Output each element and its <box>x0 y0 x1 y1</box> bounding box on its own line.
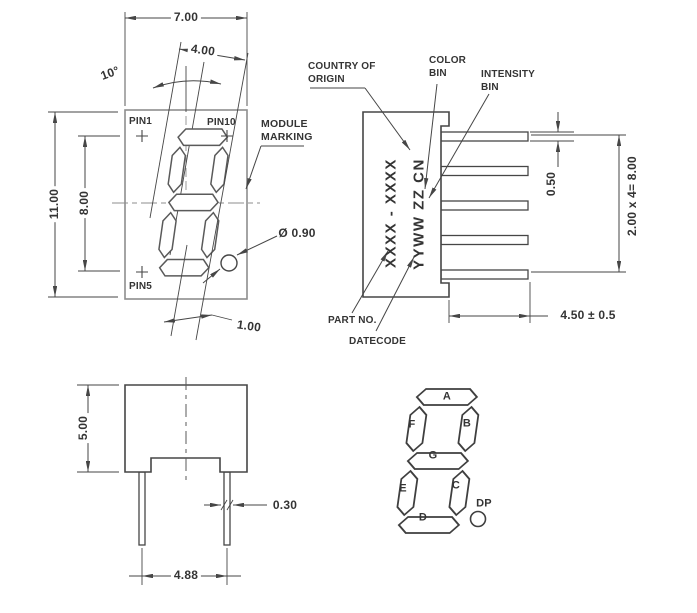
part-number-marking-text: XXXX - XXXX <box>384 158 399 268</box>
front-dp-circle <box>221 255 237 271</box>
dim-11mm-label: 11.00 <box>48 186 60 222</box>
front-view <box>48 12 304 340</box>
dim-8mm-label: 8.00 <box>78 188 90 218</box>
datecode-marking-text: YYWW ZZ CN <box>412 158 427 270</box>
segment-f-label: F <box>409 420 416 431</box>
segment-g-label: G <box>429 451 438 462</box>
segment-c-shape <box>448 471 470 515</box>
segment-d-label: D <box>419 513 427 524</box>
bottom-view <box>77 377 267 585</box>
side-view-body <box>363 112 449 297</box>
country-of-origin-label-line2: ORIGIN <box>308 75 345 85</box>
segment-e-label: E <box>399 484 407 495</box>
drawing-linework <box>0 0 697 613</box>
dim-4mm-label: 4.00 <box>187 42 219 58</box>
dim-pin-width-label: 0.30 <box>273 499 297 511</box>
side-view <box>310 84 626 331</box>
part-no-label: PART NO. <box>328 316 377 326</box>
led-display-technical-drawing: 7.00 4.00 10° PIN1 PIN10 PIN5 MODULE MAR… <box>0 0 697 613</box>
dim-1mm-label: 1.00 <box>236 318 262 333</box>
segment-a-label: A <box>443 392 451 403</box>
dim-7mm-label: 7.00 <box>171 11 201 23</box>
dim-pin-thickness-label: 0.50 <box>545 172 557 196</box>
segment-dp-circle <box>471 512 486 527</box>
dim-dp-diameter-label: Ø 0.90 <box>278 227 315 239</box>
front-digit <box>155 129 232 276</box>
segment-dp-label: DP <box>476 499 492 510</box>
module-marking-label-line1: MODULE <box>261 119 308 130</box>
pin1-label: PIN1 <box>129 117 152 127</box>
segment-d-shape <box>398 517 460 533</box>
color-bin-label-line2: BIN <box>429 69 447 79</box>
pin10-label: PIN10 <box>207 118 236 128</box>
dim-5mm-label: 5.00 <box>77 413 89 443</box>
segment-g-shape <box>407 453 469 469</box>
color-bin-label-line1: COLOR <box>429 56 466 66</box>
dim-line-1mm <box>164 315 212 322</box>
datecode-label: DATECODE <box>349 337 406 347</box>
intensity-bin-label-line2: BIN <box>481 83 499 93</box>
module-marking-label-line2: MARKING <box>261 132 313 143</box>
angle-arc-10deg <box>153 81 221 88</box>
intensity-bin-label-line1: INTENSITY <box>481 70 535 80</box>
dim-pin-pitch-label: 2.00 x 4= 8.00 <box>626 156 638 236</box>
module-marking-leader <box>246 146 261 189</box>
dim-pin-length-label: 4.50 ± 0.5 <box>560 309 615 321</box>
segment-b-label: B <box>463 419 471 430</box>
dim-pin-spacing-label: 4.88 <box>171 569 201 581</box>
segment-diagram <box>394 389 486 533</box>
country-of-origin-label-line1: COUNTRY OF <box>308 62 376 72</box>
pin5-label: PIN5 <box>129 282 152 292</box>
segment-c-label: C <box>452 481 460 492</box>
